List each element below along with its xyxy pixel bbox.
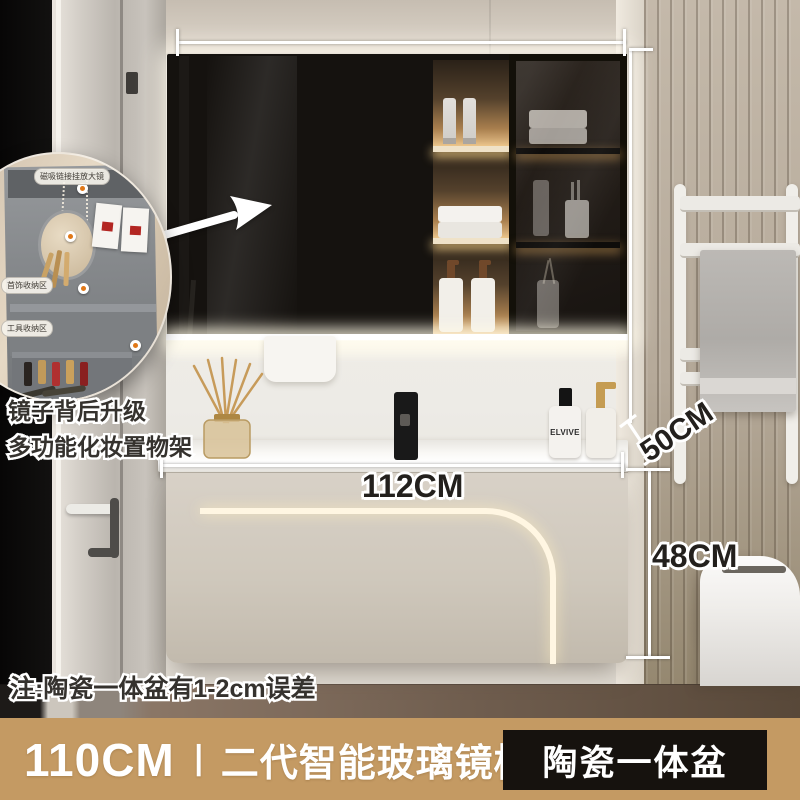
product-image: ELVIVE 磁吸链接挂放大镜 首饰收纳区 工具收纳区	[0, 0, 800, 800]
dim-tick	[623, 29, 626, 56]
lipstick	[38, 360, 46, 384]
callout-feature-2: 多功能化妆置物架	[8, 434, 192, 462]
soap-pump-spout	[596, 382, 616, 389]
towel-rack-rung	[680, 196, 800, 212]
dim-line-height	[648, 470, 651, 658]
faucet-sensor	[400, 414, 410, 426]
black-faucet	[394, 392, 418, 460]
vanity-led-strip	[200, 508, 556, 664]
lipstick	[66, 360, 74, 384]
dim-tick	[621, 452, 624, 478]
tube-cap	[443, 138, 456, 144]
banner-tag-basin: 陶瓷一体盆	[503, 730, 767, 790]
pump-bottle	[471, 278, 495, 332]
dim-tick	[626, 656, 670, 659]
reed-diffuser	[186, 356, 270, 460]
lipstick	[80, 362, 88, 386]
dim-line-width	[162, 464, 624, 467]
hand-towel	[264, 336, 336, 382]
glass-sheen	[516, 61, 620, 331]
lipstick	[24, 362, 32, 386]
banner-separator: 丨	[175, 734, 221, 783]
inset-label-magnifier: 磁吸链接挂放大镜	[34, 168, 110, 185]
behind-mirror-inset: 磁吸链接挂放大镜 首饰收纳区 工具收纳区	[0, 152, 172, 402]
feature-pin	[78, 283, 89, 294]
callout-note: 注:陶瓷一体盆有1-2cm误差	[10, 674, 316, 704]
title-banner: 110CM 丨 二代智能玻璃镜柜 陶瓷一体盆	[0, 718, 800, 800]
dim-line-top	[178, 41, 626, 44]
shampoo-bottle: ELVIVE	[549, 406, 581, 458]
jewelry-box	[121, 207, 149, 252]
dim-tick	[176, 29, 179, 56]
jewelry-box	[92, 203, 122, 249]
banner-product-name: 二代智能玻璃镜柜	[221, 732, 533, 787]
callout-feature-1: 镜子背后升级	[8, 398, 146, 426]
smart-toilet	[700, 556, 800, 686]
dim-label-height: 48CM	[652, 540, 737, 572]
pump-bottle-spout	[479, 260, 491, 265]
towel-band	[700, 378, 796, 394]
inset-label-jewelry: 首饰收纳区	[1, 277, 53, 294]
shelf-board	[433, 146, 511, 152]
folded-towel	[438, 206, 502, 222]
dim-tick	[626, 468, 670, 471]
pointer-arrow	[150, 190, 280, 250]
tube-cap	[463, 138, 476, 144]
folded-towel	[438, 222, 502, 238]
banner-title: 110CM 丨 二代智能玻璃镜柜	[24, 732, 533, 787]
shampoo-cap	[559, 388, 572, 408]
feature-pin	[130, 340, 141, 351]
soap-pump-neck	[596, 386, 605, 410]
shampoo-label: ELVIVE	[550, 428, 580, 437]
door-handle-foot	[88, 548, 116, 557]
dim-tick	[629, 48, 653, 51]
dim-label-width: 112CM	[362, 470, 463, 502]
dim-line-cabinet-height	[629, 49, 632, 423]
shelf-board	[433, 238, 511, 244]
door-hinge	[126, 72, 138, 94]
pump-bottle	[439, 278, 463, 332]
pump-bottle-spout	[447, 260, 459, 265]
banner-size: 110CM	[24, 733, 175, 787]
feature-pin	[65, 231, 76, 242]
lipstick	[52, 362, 60, 386]
inset-label-tools: 工具收纳区	[1, 320, 53, 337]
wall-seam	[489, 0, 491, 56]
